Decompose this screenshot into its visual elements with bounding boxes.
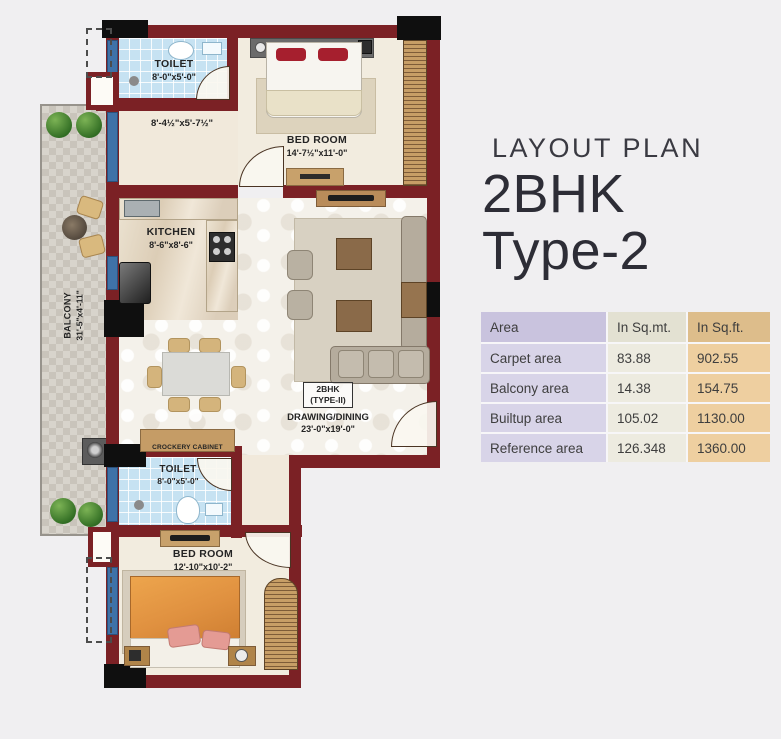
pillow (276, 48, 306, 61)
shower-icon (134, 500, 144, 510)
balcony-table (62, 215, 87, 240)
wardrobe (403, 40, 427, 186)
fridge (119, 262, 151, 304)
table-cell: 14.38 (608, 374, 686, 402)
dining-chair (199, 338, 221, 353)
table-header-area: Area (481, 312, 606, 342)
window (107, 256, 118, 290)
crockery-cabinet-label: CROCKERY CABINET (140, 435, 235, 456)
bedroom-top-label: BED ROOM 14'-7½"x11'-0" (262, 134, 372, 159)
table-cell: 83.88 (608, 344, 686, 372)
area-table: Area In Sq.mt. In Sq.ft. Carpet area 83.… (481, 312, 770, 462)
pouf (287, 250, 313, 280)
washing-machine-drum (87, 442, 103, 458)
layout-plan-kicker: LAYOUT PLAN (492, 133, 703, 164)
wash-basin (205, 503, 223, 516)
page-title: 2BHK Type-2 (482, 166, 650, 280)
dining-chair (231, 366, 246, 388)
dining-chair (199, 397, 221, 412)
wall (106, 185, 238, 198)
projection-line (86, 557, 112, 643)
burner-icon (224, 236, 231, 243)
pillow (318, 48, 348, 61)
table-header-sqft: In Sq.ft. (688, 312, 770, 342)
lobby-floor (242, 455, 289, 526)
window (107, 467, 118, 522)
dining-chair (168, 338, 190, 353)
tv-icon (170, 535, 210, 541)
dining-chair (168, 397, 190, 412)
window (107, 112, 118, 182)
table-cell: 105.02 (608, 404, 686, 432)
sofa-cushion (368, 350, 394, 378)
table-cell: Builtup area (481, 404, 606, 432)
wc (176, 496, 200, 524)
column (397, 16, 441, 40)
wall (289, 455, 440, 468)
sofa-cushion (338, 350, 364, 378)
unit-tag: 2BHK (TYPE-II) (303, 382, 353, 408)
table-cell: 1130.00 (688, 404, 770, 432)
dining-chair (147, 366, 162, 388)
balcony-label: BALCONY 31'-5"x4'-11" (63, 250, 86, 380)
wardrobe (264, 578, 298, 670)
wall (106, 25, 440, 38)
table-cell: 1360.00 (688, 434, 770, 462)
tree-icon (46, 112, 72, 138)
table-cell: 154.75 (688, 374, 770, 402)
toilet-top-label: TOILET 8'-0"x5'-0" (128, 58, 220, 83)
pouf (287, 290, 313, 320)
column (104, 300, 144, 337)
tree-icon (50, 498, 76, 524)
sink (202, 42, 222, 55)
dresser-handle (300, 174, 330, 179)
floor-plan: BALCONY 31'-5"x4'-11" (0, 0, 460, 739)
phone-icon (129, 650, 141, 661)
table-cell: Balcony area (481, 374, 606, 402)
kitchen-sink (124, 200, 160, 217)
pillow (201, 629, 231, 650)
tree-icon (78, 502, 103, 527)
projection-line (86, 28, 112, 78)
table-cell: Reference area (481, 434, 606, 462)
table-header-sqmt: In Sq.mt. (608, 312, 686, 342)
burner-icon (213, 236, 220, 243)
drawing-dining-label: DRAWING/DINING 23'-0"x19'-0" (270, 412, 386, 436)
kitchen-label: KITCHEN 8'-6"x8'-6" (128, 226, 214, 251)
burner-icon (213, 248, 220, 255)
burner-icon (224, 248, 231, 255)
tv-icon (328, 195, 374, 201)
toilet-bottom-label: TOILET 8'-0"x5'-0" (138, 463, 218, 487)
coffee-table (336, 238, 372, 270)
bedroom-bottom-label: BED ROOM 12'-10"x10'-2" (148, 548, 258, 573)
sofa-side-table (401, 282, 427, 318)
table-cell: Carpet area (481, 344, 606, 372)
title-line-1: 2BHK (482, 166, 650, 223)
tree-icon (76, 112, 102, 138)
sofa-cushion (398, 350, 424, 378)
layout-plan-page: BALCONY 31'-5"x4'-11" (0, 0, 781, 739)
coffee-table (336, 300, 372, 332)
clock-icon (255, 42, 266, 53)
title-line-2: Type-2 (482, 223, 650, 280)
clock-icon (235, 649, 248, 662)
dining-table (162, 352, 230, 396)
blanket (266, 90, 362, 116)
table-cell: 902.55 (688, 344, 770, 372)
passage-dim-label: 8'-4½"x5'-7½" (126, 118, 238, 130)
table-cell: 126.348 (608, 434, 686, 462)
